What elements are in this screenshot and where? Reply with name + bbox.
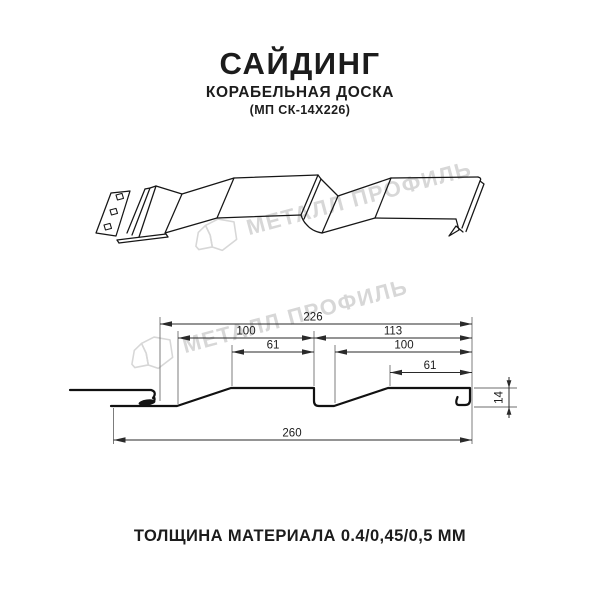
dim-label-226: 226 bbox=[303, 312, 322, 324]
dim-label-61-right: 61 bbox=[424, 360, 437, 372]
dim-label-14: 14 bbox=[494, 391, 506, 404]
dim-label-100-right: 100 bbox=[394, 340, 413, 352]
product-drawing-page: САЙДИНГ КОРАБЕЛЬНАЯ ДОСКА (МП СК-14Х226)… bbox=[0, 0, 600, 600]
dimension-lines bbox=[114, 324, 473, 440]
adjacent-panel-edge bbox=[70, 390, 155, 398]
profile-outline bbox=[70, 388, 470, 406]
top2-3d bbox=[375, 177, 478, 219]
extension-lines bbox=[114, 317, 518, 444]
flange-3d bbox=[96, 191, 130, 236]
right-edge-3d bbox=[449, 177, 484, 236]
slope1-3d bbox=[165, 178, 234, 233]
panel-profile bbox=[111, 388, 470, 406]
slope2-3d bbox=[322, 178, 391, 233]
technical-drawing-canvas: 226 100 113 61 100 61 260 14 bbox=[0, 0, 600, 600]
profile-cross-section: 226 100 113 61 100 61 260 14 bbox=[70, 312, 517, 445]
dim-label-100-left: 100 bbox=[236, 326, 255, 338]
profile-3d-view bbox=[96, 175, 484, 243]
lock-fold-3d bbox=[117, 186, 182, 243]
flange-holes bbox=[104, 193, 124, 230]
dim-label-260: 260 bbox=[282, 428, 301, 440]
dim-label-113: 113 bbox=[384, 326, 402, 338]
dim-label-61-left: 61 bbox=[267, 340, 280, 352]
dim-line-14 bbox=[507, 377, 512, 418]
dimension-labels: 226 100 113 61 100 61 260 14 bbox=[236, 312, 505, 440]
step-3d bbox=[301, 175, 391, 233]
